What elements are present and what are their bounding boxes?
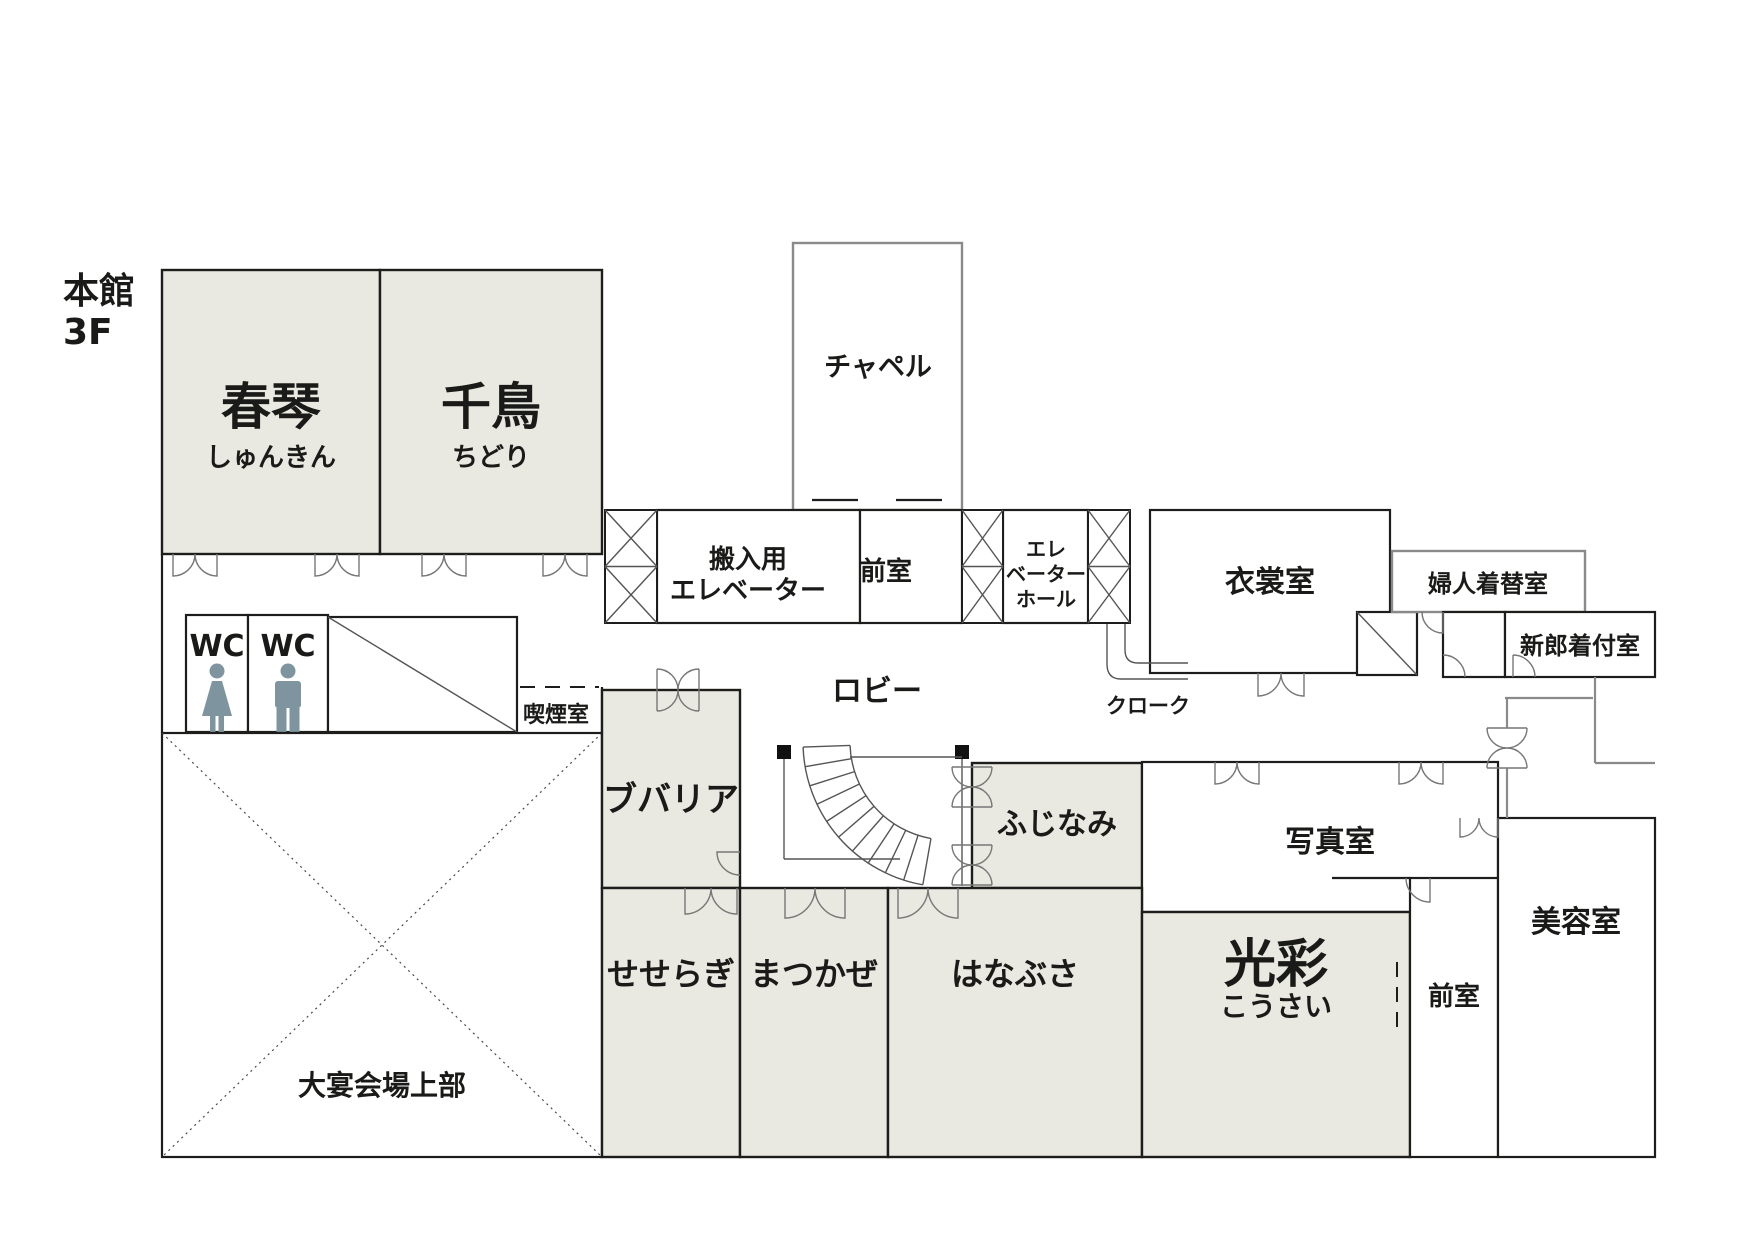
elevator-hall-label-2: ベーター bbox=[1006, 562, 1086, 586]
stairs-box-icon bbox=[1357, 612, 1417, 675]
bouvardia-label: ブバリア bbox=[603, 780, 739, 820]
wc-women-label: WC bbox=[189, 629, 244, 664]
room-smoking: 喫煙室 bbox=[520, 687, 602, 733]
wc-men-label: WC bbox=[260, 629, 315, 664]
smoking-room-label: 喫煙室 bbox=[523, 702, 589, 728]
room-chapel-label: チャペル bbox=[824, 352, 932, 383]
spiral-staircase bbox=[777, 745, 969, 886]
floor-plan-svg: 本館 3F 春琴 しゅんきん 千鳥 ちどり チャペル 搬入用 エレベーター 前室… bbox=[0, 0, 1754, 1241]
room-wc-women: WC bbox=[186, 615, 248, 732]
floor-plan-page: 本館 3F 春琴 しゅんきん 千鳥 ちどり チャペル 搬入用 エレベーター 前室… bbox=[0, 0, 1754, 1241]
fujinami-label: ふじなみ bbox=[997, 807, 1117, 842]
kousai-label: 光彩 bbox=[1224, 935, 1328, 995]
room-bouvardia: ブバリア bbox=[602, 690, 740, 888]
room-costume: 衣裳室 bbox=[1150, 510, 1390, 673]
room-hanabusa: はなぶさ bbox=[888, 888, 1142, 1157]
chapel-anteroom-label: 前室 bbox=[860, 556, 912, 587]
service-elevator-label-1: 搬入用 bbox=[709, 544, 787, 575]
lobby-label: ロビー bbox=[832, 674, 922, 709]
kousai-kana: こうさい bbox=[1220, 990, 1332, 1023]
room-chidori: 千鳥 ちどり bbox=[380, 270, 602, 554]
title-building: 本館 bbox=[63, 270, 135, 312]
room-beauty-salon: 美容室 bbox=[1498, 818, 1655, 1157]
room-chidori-label: 千鳥 bbox=[441, 378, 541, 436]
service-elevator-label-2: エレベーター bbox=[670, 576, 826, 606]
room-shunkin-kana: しゅんきん bbox=[206, 443, 336, 473]
room-elevator-hall: エレ ベーター ホール bbox=[1003, 510, 1088, 623]
room-grooms-dressing: 新郎着付室 bbox=[1443, 612, 1655, 677]
title-floor: 3F bbox=[63, 312, 113, 353]
seseragi-label: せせらぎ bbox=[607, 955, 735, 993]
hanabusa-label: はなぶさ bbox=[951, 955, 1079, 993]
room-chapel: チャペル bbox=[793, 243, 962, 510]
elevator-hall-label-1: エレ bbox=[1026, 537, 1066, 561]
room-shunkin: 春琴 しゅんきん bbox=[162, 270, 380, 554]
elevator-hall-label-3: ホール bbox=[1016, 587, 1076, 611]
room-banquet-upper: 大宴会場上部 bbox=[162, 733, 602, 1157]
sloped-room bbox=[328, 617, 517, 732]
photo-room-label: 写真室 bbox=[1285, 825, 1375, 860]
grooms-dressing-label: 新郎着付室 bbox=[1520, 632, 1640, 660]
room-service-elevator: 搬入用 エレベーター bbox=[657, 510, 860, 623]
cloak-label: クローク bbox=[1106, 694, 1190, 718]
banquet-upper-label: 大宴会場上部 bbox=[298, 1069, 466, 1102]
womens-changing-label: 婦人着替室 bbox=[1427, 570, 1548, 598]
beauty-salon-label: 美容室 bbox=[1531, 905, 1621, 940]
room-kousai: 光彩 こうさい bbox=[1142, 912, 1410, 1157]
room-womens-changing: 婦人着替室 bbox=[1392, 551, 1585, 612]
costume-room-label: 衣裳室 bbox=[1225, 565, 1315, 600]
matsukaze-label: まつかぜ bbox=[750, 955, 878, 993]
room-matsukaze: まつかぜ bbox=[740, 888, 888, 1157]
kousai-anteroom-label: 前室 bbox=[1428, 981, 1480, 1012]
room-kousai-anteroom: 前室 bbox=[1410, 878, 1498, 1157]
room-fujinami: ふじなみ bbox=[972, 763, 1142, 888]
room-seseragi: せせらぎ bbox=[602, 888, 740, 1157]
room-chapel-anteroom: 前室 bbox=[860, 510, 962, 623]
room-chidori-kana: ちどり bbox=[452, 443, 530, 473]
room-wc-men: WC bbox=[248, 615, 328, 732]
stair-post-left bbox=[777, 745, 791, 759]
page-title: 本館 3F bbox=[63, 270, 135, 353]
room-shunkin-label: 春琴 bbox=[221, 378, 321, 436]
